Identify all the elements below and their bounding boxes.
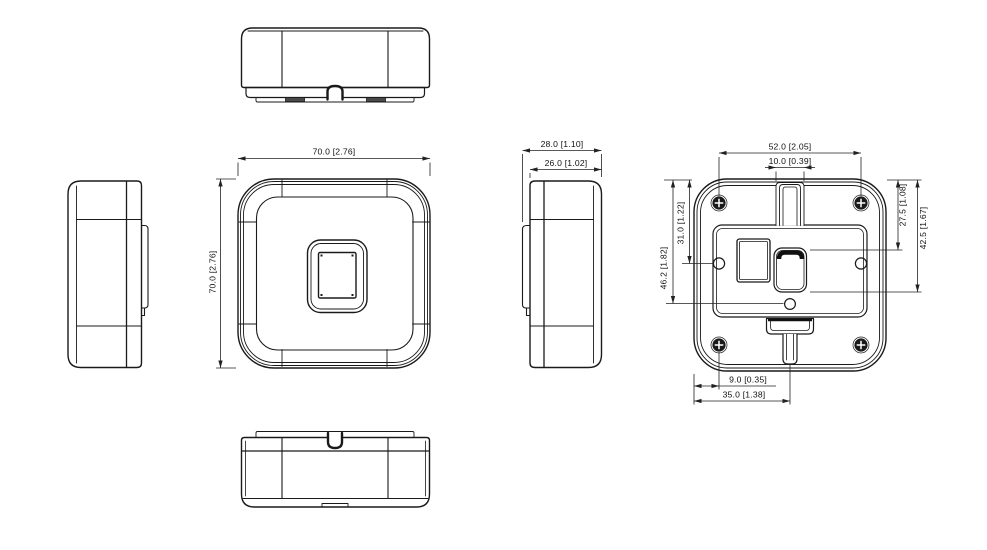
- screw-span-label: 52.0 [2.05]: [769, 142, 812, 152]
- slot-top-offset-label: 27.5 [1.08]: [898, 184, 908, 227]
- pin-offset-label: 46.2 [1.82]: [659, 247, 669, 290]
- back-view: 52.0 [2.05] 10.0 [0.39] 46.2 [1.82] 31.0…: [659, 142, 929, 405]
- left-bracket: [142, 226, 149, 316]
- sensor-window: [308, 240, 368, 313]
- drawing-canvas: 70.0 [2.76] 70.0 [2.76] 28.0 [1.10] 26.0…: [0, 0, 987, 550]
- rect-opening: [737, 239, 770, 282]
- screw-top-right: [853, 195, 869, 211]
- dimension-body-depth: 26.0 [1.02]: [530, 158, 602, 178]
- top-foot-right: [367, 98, 386, 102]
- bottom-cable-notch: [328, 433, 342, 448]
- dimension-drawing: 70.0 [2.76] 70.0 [2.76] 28.0 [1.10] 26.0…: [0, 0, 987, 550]
- front-width-label: 70.0 [2.76]: [313, 147, 356, 157]
- bottom-view: [242, 432, 430, 508]
- body-depth-label: 26.0 [1.02]: [545, 158, 588, 168]
- right-seam-lines: [530, 220, 594, 327]
- overall-depth-label: 28.0 [1.10]: [541, 139, 584, 149]
- front-face-panel: [257, 197, 414, 350]
- cable-channel: [776, 183, 804, 226]
- front-view: 70.0 [2.76] 70.0 [2.76]: [208, 147, 431, 369]
- top-view: [242, 28, 430, 102]
- right-bracket: [523, 226, 531, 316]
- screw-bottom-right: [853, 337, 869, 353]
- top-foot-left: [286, 98, 305, 102]
- hole-left: [713, 258, 724, 269]
- dimension-front-width: 70.0 [2.76]: [238, 147, 430, 177]
- left-seam-lines: [77, 220, 142, 327]
- screw-edge-offset-label: 9.0 [0.35]: [729, 375, 767, 385]
- hole-right: [855, 258, 866, 269]
- left-side-view: [68, 181, 148, 368]
- bottom-edge-curves: [246, 441, 426, 496]
- hole-center: [785, 299, 796, 310]
- right-side-view: 28.0 [1.10] 26.0 [1.02]: [523, 139, 602, 368]
- center-edge-offset-label: 35.0 [1.38]: [723, 390, 766, 400]
- dimension-channel-width: 10.0 [0.39]: [765, 156, 815, 181]
- screw-bottom-left: [711, 337, 727, 353]
- dimension-slot-bottom-offset: 42.5 [1.67]: [810, 180, 928, 292]
- top-cable-notch: [328, 86, 343, 100]
- channel-width-label: 10.0 [0.39]: [769, 156, 812, 166]
- hole-offset-label: 31.0 [1.22]: [676, 202, 686, 245]
- top-panel-seams: [282, 31, 388, 88]
- center-slot: [774, 248, 807, 292]
- dimension-slot-top-offset: 27.5 [1.08]: [810, 180, 922, 250]
- bottom-clamp: [767, 319, 814, 365]
- slot-bottom-offset-label: 42.5 [1.67]: [918, 207, 928, 250]
- slot-shadow: [779, 253, 802, 260]
- front-height-label: 70.0 [2.76]: [208, 251, 218, 294]
- front-corner-seams: [239, 180, 430, 367]
- dimension-front-height: 70.0 [2.76]: [208, 179, 237, 368]
- screw-top-left: [711, 195, 727, 211]
